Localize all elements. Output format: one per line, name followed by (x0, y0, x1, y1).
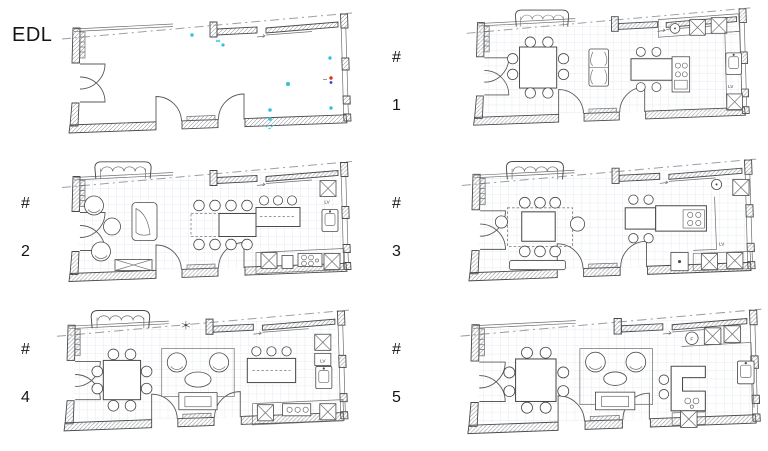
tall-unit-icon (257, 405, 273, 421)
armchair (210, 353, 229, 372)
survey-annotations (190, 33, 332, 129)
lounge-chair (132, 203, 157, 241)
sink-icon (322, 210, 338, 232)
hash-sign: # (21, 192, 30, 216)
armchair (626, 352, 646, 372)
floor-plan-option-3: LV (458, 154, 761, 291)
hash-sign: # (392, 46, 401, 70)
plan-label-3: # 3 (392, 168, 401, 288)
plan-number: 3 (392, 240, 401, 264)
plan-number: 2 (21, 240, 30, 264)
kitchen-island (256, 196, 300, 227)
kitchen-counter-right: LV (315, 334, 332, 388)
armchair (586, 352, 606, 372)
armchair (85, 196, 104, 215)
plan-number: 1 (392, 94, 401, 118)
kitchen-counter-bottom (671, 251, 751, 270)
low-sideboard (510, 261, 566, 270)
coffee-table (604, 372, 627, 385)
console-cabinet (589, 49, 609, 86)
tall-unit-icon (690, 20, 706, 36)
coffee-table (185, 372, 211, 387)
tall-unit-icon (727, 252, 743, 268)
tall-unit-icon (320, 181, 336, 197)
kitchen-island (247, 347, 295, 383)
tall-unit-icon (733, 179, 749, 195)
tall-unit-icon (704, 328, 721, 345)
tall-unit-icon (701, 253, 717, 269)
bench (115, 260, 152, 271)
dishwasher-label: LV (320, 358, 326, 363)
plan-number: 4 (21, 386, 30, 410)
plan-number: 5 (392, 386, 401, 410)
tall-unit-icon (315, 334, 331, 350)
tall-unit-icon (724, 326, 741, 343)
hash-sign: # (392, 192, 401, 216)
armchair (167, 353, 186, 372)
plan-label-4: # 4 (21, 314, 30, 434)
armchair (92, 242, 111, 261)
floor-plan-option-1: LV (458, 3, 760, 135)
sink-icon (316, 366, 332, 388)
cooktop-unit (672, 57, 690, 92)
tv-unit (179, 393, 217, 410)
side-chair (495, 216, 507, 228)
coffee-table (104, 218, 121, 235)
tv-unit (595, 392, 634, 410)
floor-plan-options-sheet: EDL # 1 # 2 # 3 # 4 # 5 (0, 0, 768, 451)
dishwasher-label: LV (719, 241, 725, 246)
sink-icon (738, 361, 755, 384)
floor-plan-option-5: F (458, 304, 765, 444)
sink-icon (726, 53, 742, 75)
hash-sign: # (21, 338, 30, 362)
plan-label-1: # 1 (392, 22, 401, 142)
round-side-table (570, 217, 584, 231)
tall-unit-icon (727, 94, 743, 110)
plan-label-edl: EDL (12, 24, 52, 47)
tall-unit-icon (320, 404, 336, 420)
tall-unit-icon (324, 254, 340, 270)
tall-unit-icon (261, 253, 277, 269)
plan-label-2: # 2 (21, 168, 30, 288)
tall-unit-icon (680, 411, 697, 428)
floor-plan-option-4: LV (55, 304, 352, 442)
tall-unit-icon (711, 18, 727, 34)
dishwasher-label: LV (728, 84, 733, 89)
floor-plan-option-2: LV (60, 156, 355, 292)
floor-plan-edl (60, 8, 355, 143)
hash-sign: # (392, 338, 401, 362)
oven-label: F (690, 337, 693, 343)
plan-label-5: # 5 (392, 314, 401, 434)
